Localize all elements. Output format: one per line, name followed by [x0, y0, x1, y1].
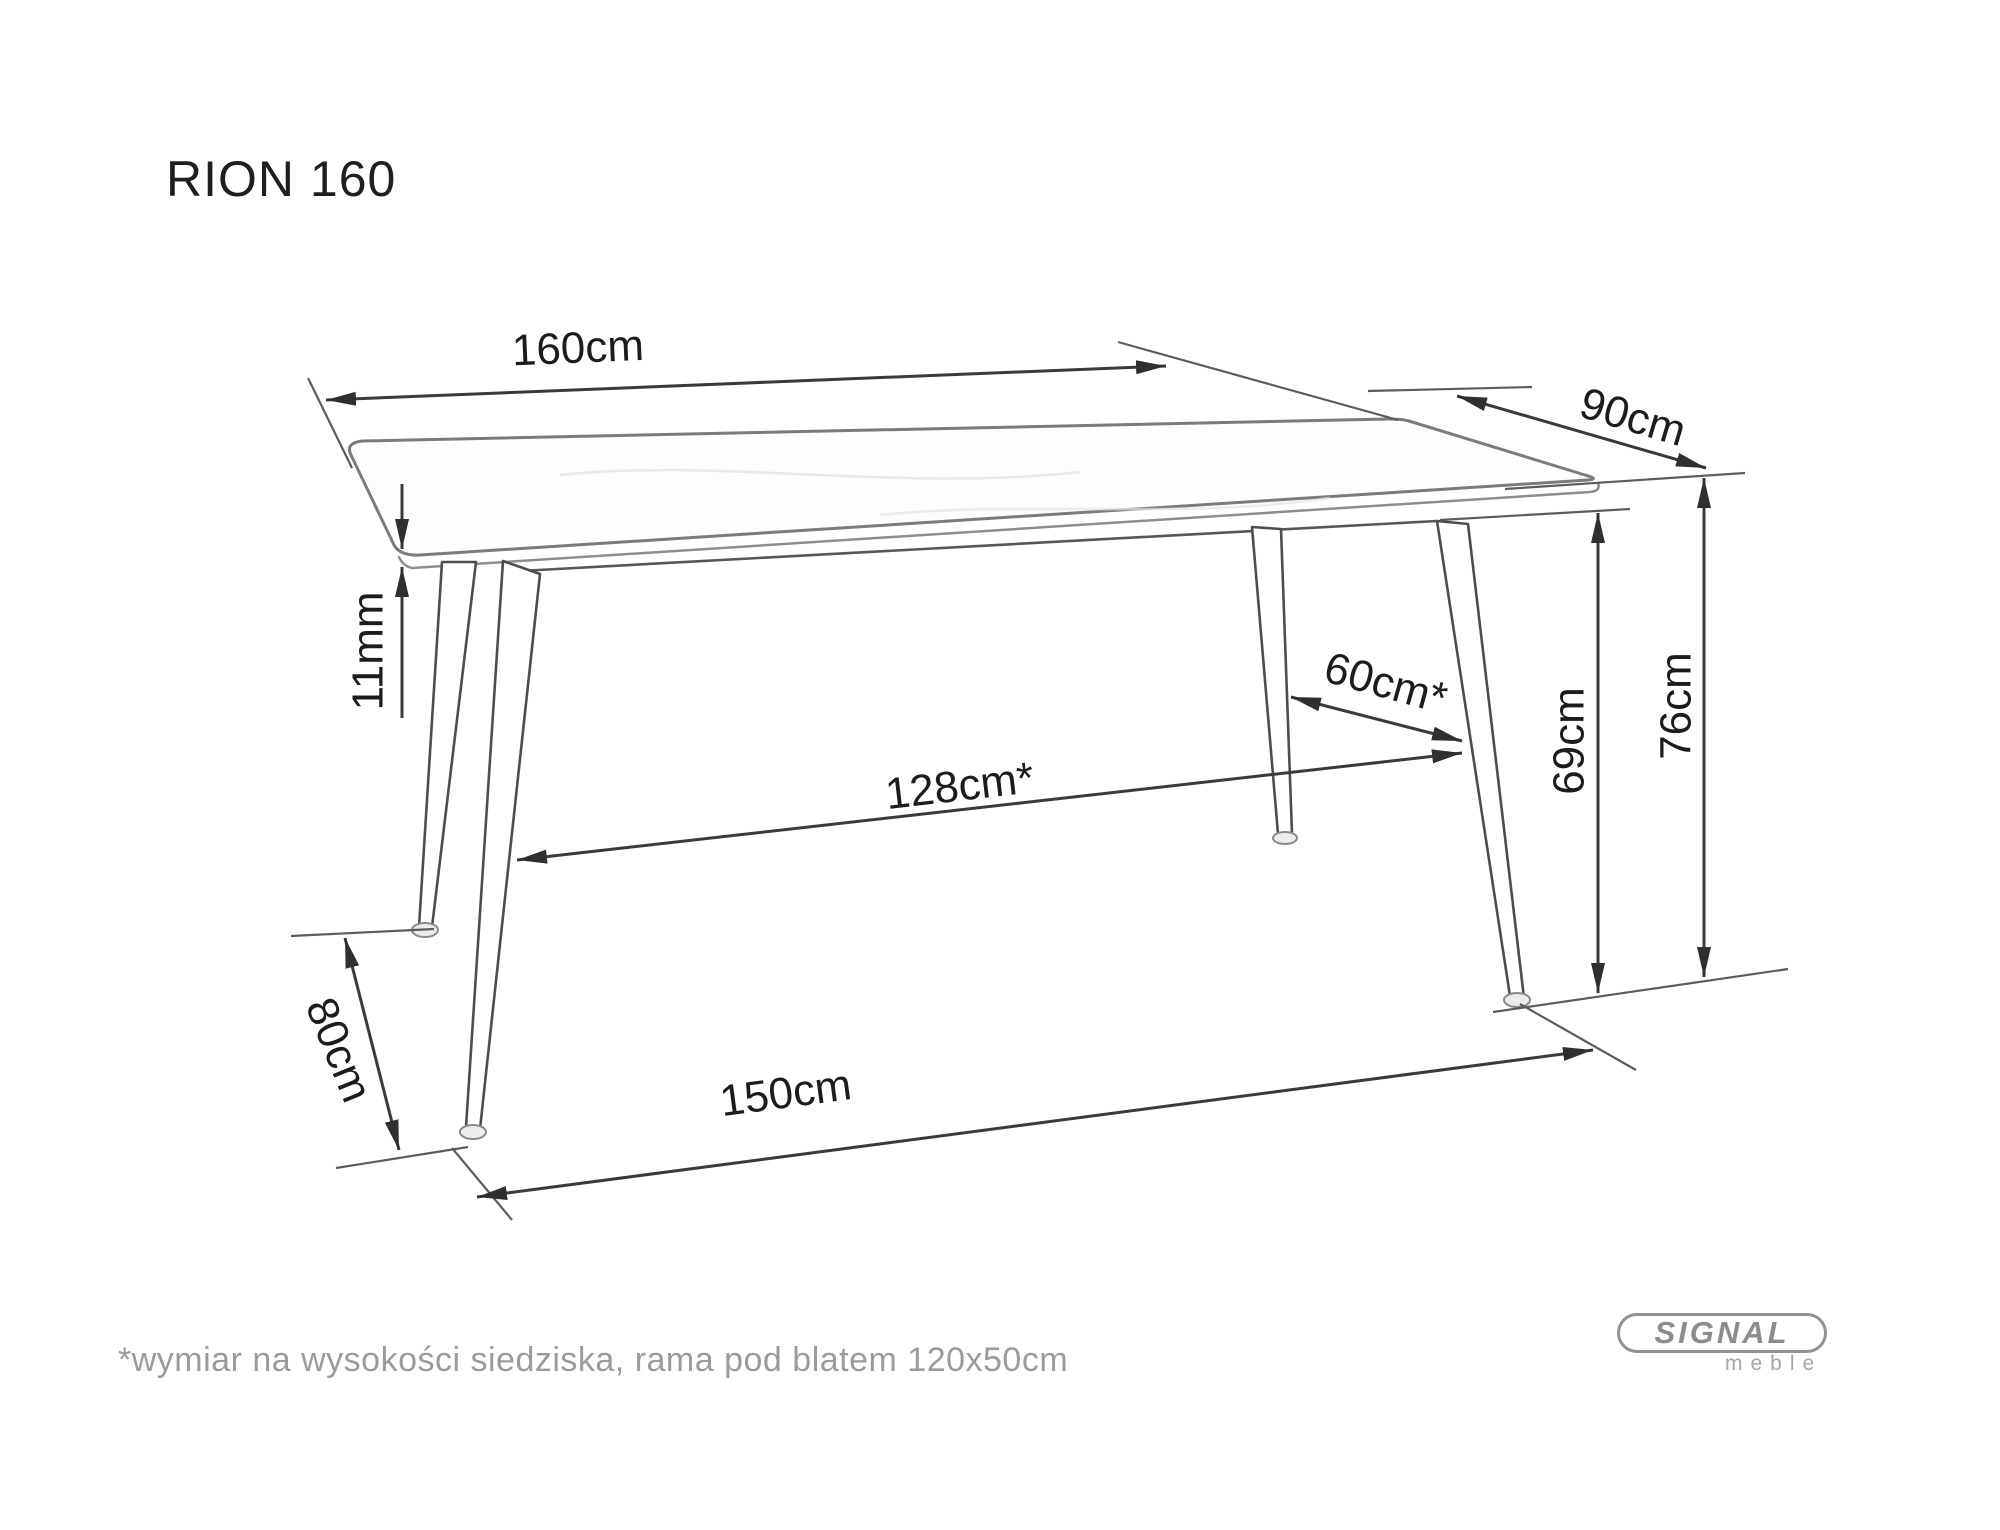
dim-label-leg-span-length: 128cm*	[883, 753, 1037, 819]
dim-label-height-under-top: 69cm	[1545, 687, 1594, 795]
leg-back-right	[1252, 527, 1292, 834]
dimension-feet-span-length: 150cm	[452, 1004, 1636, 1220]
dim-label-feet-span-depth: 80cm	[296, 991, 382, 1109]
table-dimension-drawing: 160cm 90cm 11mm 128cm* 60cm* 69cm	[0, 0, 2000, 1530]
leg-front-right	[1437, 521, 1524, 998]
dimension-feet-span-depth: 80cm	[291, 929, 468, 1168]
foot-front-left	[460, 1125, 486, 1139]
dimension-total-height: 76cm	[1493, 473, 1788, 1012]
dim-label-top-thickness: 11mm	[344, 592, 393, 711]
leg-back-left	[419, 562, 476, 927]
brand-logo: SIGNAL meble	[1617, 1313, 1831, 1375]
footnote: *wymiar na wysokości siedziska, rama pod…	[118, 1338, 1068, 1382]
product-dimension-sheet: RION 160	[0, 0, 2000, 1530]
logo-subtitle: meble	[1725, 1353, 1822, 1374]
dimension-leg-span-depth: 60cm*	[1291, 643, 1462, 741]
dim-label-top-depth: 90cm	[1574, 378, 1691, 456]
dimension-leg-span-length: 128cm*	[517, 753, 1462, 860]
tabletop	[349, 419, 1593, 555]
foot-front-right	[1504, 993, 1530, 1007]
logo-pill: SIGNAL	[1617, 1313, 1827, 1353]
logo-brand-text: SIGNAL	[1654, 1317, 1789, 1348]
dim-label-leg-span-depth: 60cm*	[1319, 643, 1452, 724]
dim-label-total-height: 76cm	[1652, 652, 1701, 760]
dim-label-feet-span-length: 150cm	[717, 1060, 854, 1126]
leg-front-left	[466, 561, 540, 1129]
dim-label-top-length: 160cm	[511, 321, 645, 375]
foot-back-right	[1273, 832, 1297, 844]
